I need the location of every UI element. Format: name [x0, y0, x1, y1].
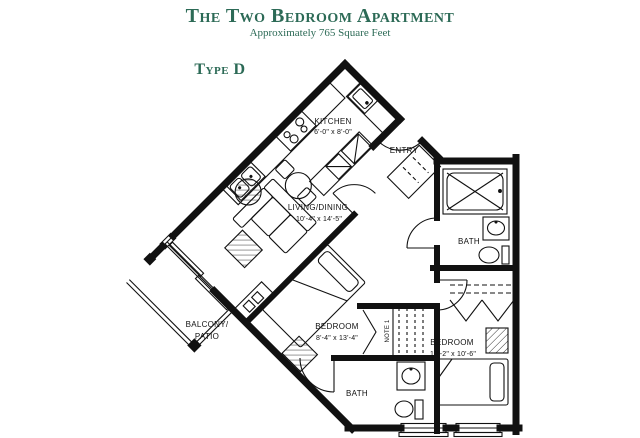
hall-closet: [363, 306, 437, 358]
bedroom-1-label: BEDROOM: [315, 322, 358, 331]
floor-plan-drawing: KITCHEN 6'-0" x 8'-0" ENTRY LIVING/DININ…: [0, 0, 640, 438]
kitchen-label: KITCHEN: [314, 117, 351, 126]
plant-icon: [230, 174, 267, 211]
sink-bath-1-icon: [483, 217, 509, 240]
dresser-bedroom-2: [486, 328, 508, 353]
bath-2-label: BATH: [346, 389, 368, 398]
bedroom-1-dims: 8'-4" x 13'-4": [316, 335, 358, 342]
sink-bath-2-icon: [397, 362, 425, 390]
page-subtitle: Approximately 765 Square Feet: [0, 27, 640, 39]
toilet-bath-1-icon: [479, 246, 509, 264]
living-dining-dims: 10'-4" x 14'-5": [296, 216, 342, 223]
entry-door: [378, 119, 422, 163]
bedroom-2-dims: 10'-2" x 10'-6": [430, 351, 476, 358]
plan-type-label: Type D: [170, 61, 270, 79]
entry-label: ENTRY: [390, 146, 419, 155]
kitchen-dims: 6'-0" x 8'-0": [314, 129, 352, 136]
ottoman: [225, 230, 262, 267]
page-title: The Two Bedroom Apartment: [0, 5, 640, 28]
bathtub-icon: [443, 169, 507, 214]
living-dining-label: LIVING/DINING: [288, 203, 348, 212]
balcony-label-line2: PATIO: [195, 332, 219, 341]
bedroom-2-label: BEDROOM: [430, 338, 473, 347]
bed-bedroom-1: [262, 244, 365, 347]
bath-1-label: BATH: [458, 237, 480, 246]
dishwasher-icon: [326, 134, 371, 179]
toilet-bath-2-icon: [395, 400, 423, 419]
closet-note-label: NOTE 1: [385, 319, 391, 342]
floor-plan-page: The Two Bedroom Apartment Approximately …: [0, 0, 640, 438]
bath-1-door: [407, 218, 437, 248]
bed-bedroom-2: [437, 359, 508, 405]
balcony-label-line1: BALCONY/: [186, 320, 229, 329]
closet-bedroom-2: [450, 285, 514, 321]
